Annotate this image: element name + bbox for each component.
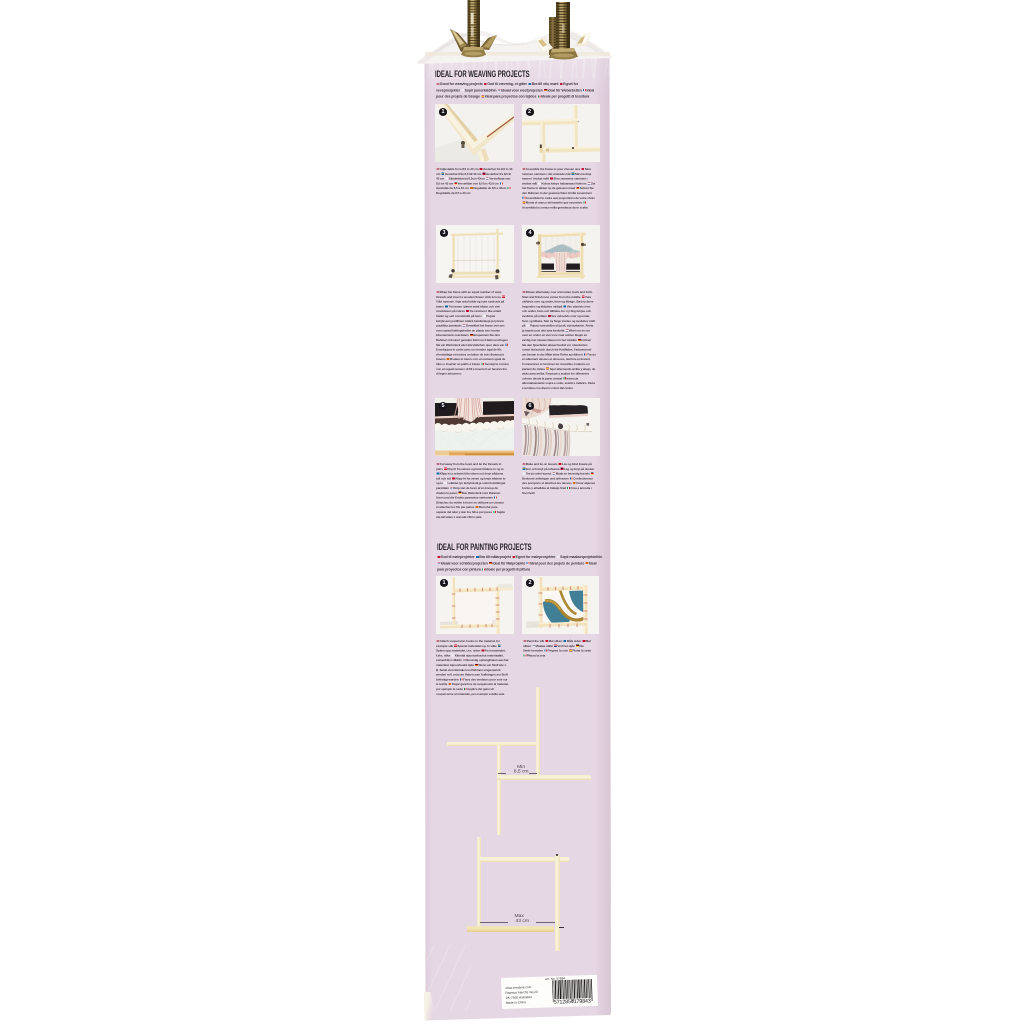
svg-text:5712854179843: 5712854179843 [553,998,590,1005]
